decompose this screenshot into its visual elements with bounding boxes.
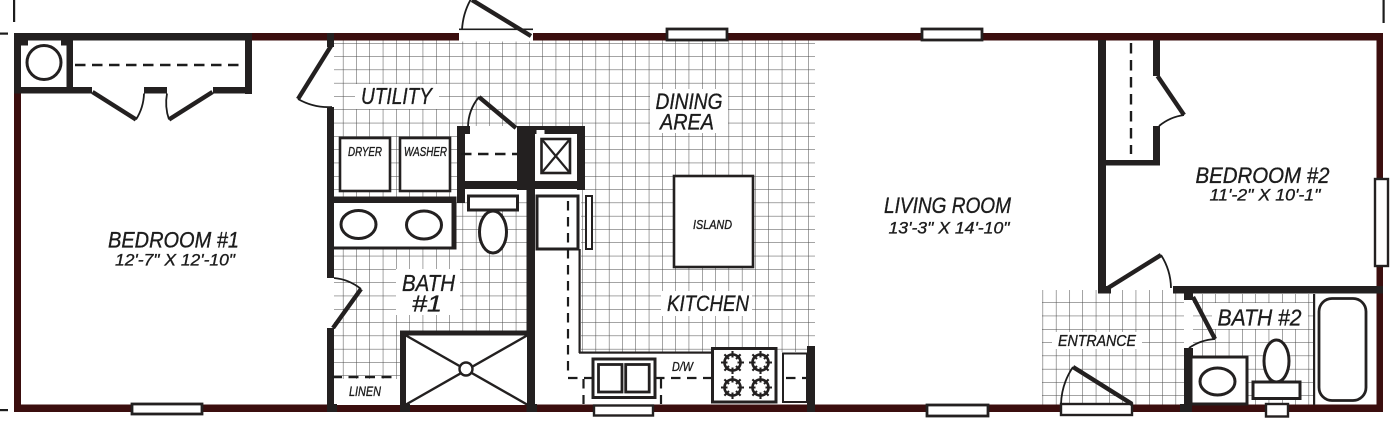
svg-text:UTILITY: UTILITY [361, 83, 433, 109]
svg-text:KITCHEN: KITCHEN [667, 291, 750, 316]
svg-text:BEDROOM #2: BEDROOM #2 [1196, 163, 1330, 188]
svg-text:WASHER: WASHER [404, 145, 447, 159]
svg-text:BEDROOM #1: BEDROOM #1 [108, 228, 239, 253]
svg-text:AREA: AREA [658, 110, 714, 135]
svg-text:DRYER: DRYER [348, 145, 382, 159]
svg-text:13'-3" X 14'-10": 13'-3" X 14'-10" [889, 219, 1011, 238]
svg-text:12'-7" X 12'-10": 12'-7" X 12'-10" [115, 251, 236, 270]
svg-text:ENTRANCE: ENTRANCE [1058, 333, 1137, 350]
svg-text:11'-2" X 10'-1": 11'-2" X 10'-1" [1210, 186, 1322, 205]
svg-text:#1: #1 [412, 291, 442, 317]
svg-text:LINEN: LINEN [349, 383, 382, 399]
svg-text:LIVING ROOM: LIVING ROOM [884, 193, 1011, 218]
svg-text:D/W: D/W [672, 360, 694, 374]
svg-text:ISLAND: ISLAND [693, 218, 732, 232]
svg-text:BATH #2: BATH #2 [1218, 305, 1302, 331]
